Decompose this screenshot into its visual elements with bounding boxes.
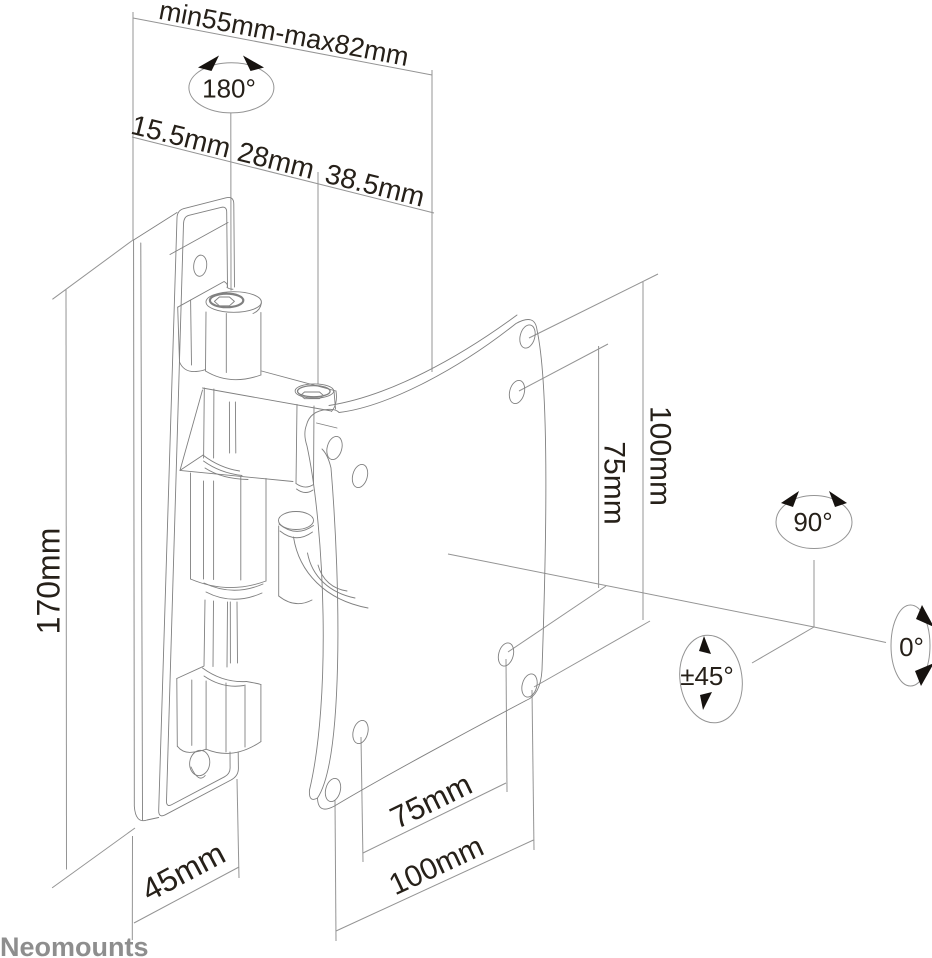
- svg-text:90°: 90°: [793, 507, 832, 537]
- svg-text:75mm: 75mm: [385, 766, 478, 835]
- svg-text:170mm: 170mm: [31, 528, 67, 635]
- svg-text:75mm: 75mm: [598, 441, 631, 524]
- svg-text:180°: 180°: [202, 74, 256, 104]
- svg-text:Neomounts: Neomounts: [0, 932, 149, 958]
- svg-text:28mm: 28mm: [235, 136, 318, 185]
- svg-text:15.5mm: 15.5mm: [128, 109, 234, 164]
- svg-text:min55mm-max82mm: min55mm-max82mm: [157, 0, 412, 72]
- svg-text:45mm: 45mm: [136, 835, 231, 909]
- svg-text:100mm: 100mm: [644, 406, 677, 506]
- svg-text:100mm: 100mm: [384, 830, 489, 902]
- svg-text:0°: 0°: [899, 632, 924, 662]
- svg-text:38.5mm: 38.5mm: [322, 158, 428, 213]
- svg-text:±45°: ±45°: [680, 661, 734, 691]
